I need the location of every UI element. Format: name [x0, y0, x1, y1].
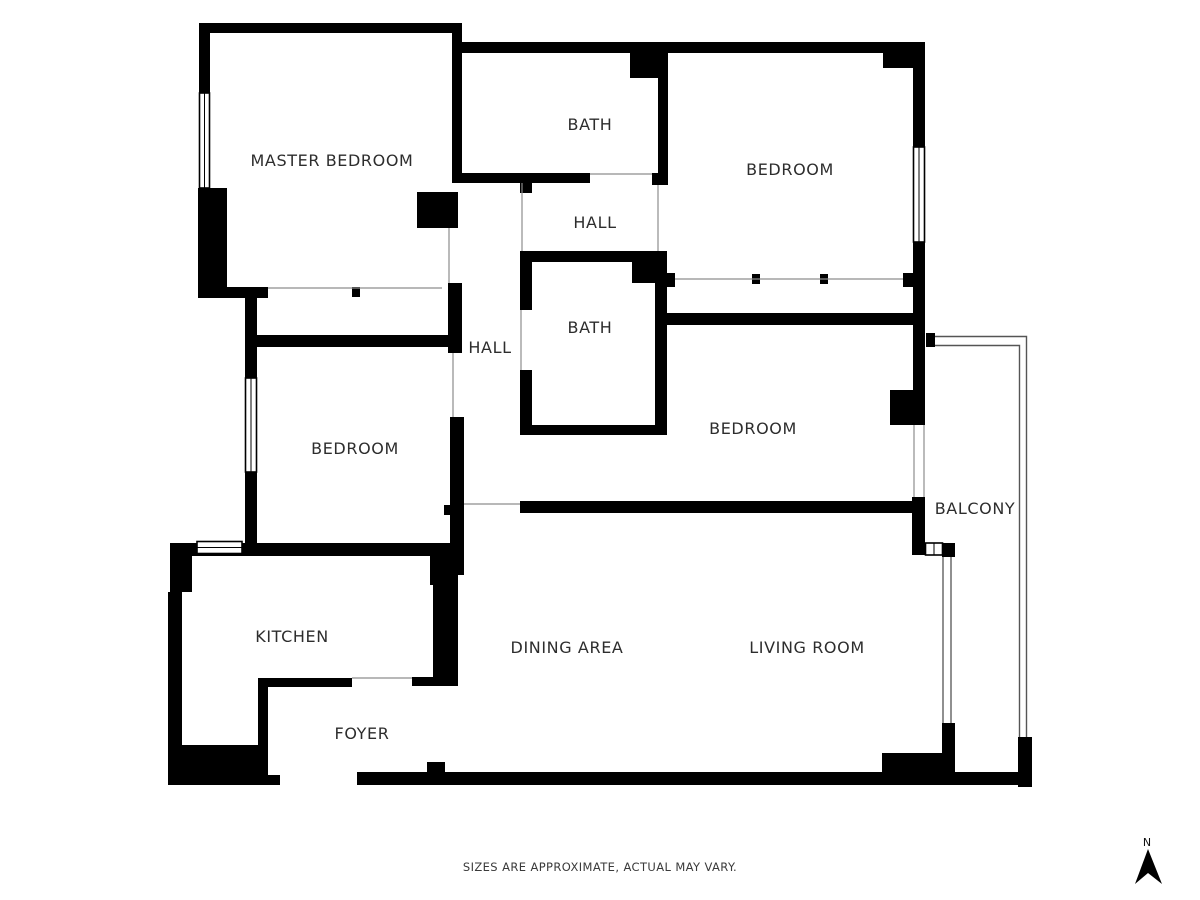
wall: [170, 543, 192, 592]
wall: [652, 173, 658, 185]
wall: [199, 23, 210, 93]
wall: [520, 425, 667, 435]
wall: [412, 677, 458, 686]
room-label-hall-top: HALL: [573, 213, 616, 232]
wall: [655, 283, 667, 435]
wall: [452, 42, 925, 53]
wall-column: [890, 390, 925, 425]
room-label-balcony: BALCONY: [935, 499, 1016, 518]
room-label-bedroom-right: BEDROOM: [709, 419, 797, 438]
room-label-master-bedroom: MASTER BEDROOM: [251, 151, 414, 170]
balcony-rail: [935, 337, 1027, 738]
walls: [168, 23, 1032, 787]
wall: [258, 678, 352, 687]
wall-block: [630, 53, 658, 78]
wall: [245, 298, 257, 378]
wall: [658, 42, 668, 185]
room-label-hall-center: HALL: [468, 338, 511, 357]
wall: [452, 173, 590, 183]
room-label-kitchen: KITCHEN: [255, 627, 329, 646]
wall: [227, 287, 268, 298]
wall: [926, 333, 935, 347]
wall: [667, 313, 913, 325]
room-label-foyer: FOYER: [335, 724, 390, 743]
room-label-living-room: LIVING ROOM: [749, 638, 864, 657]
balcony-rail-outer: [935, 337, 1027, 738]
wall: [427, 762, 445, 772]
room-label-bedroom-left: BEDROOM: [311, 439, 399, 458]
wall: [912, 497, 925, 555]
room-label-bath-center: BATH: [568, 318, 613, 337]
wall: [245, 472, 257, 543]
wall: [258, 678, 268, 778]
wall: [433, 573, 458, 685]
room-label-bedroom-top-right: BEDROOM: [746, 160, 834, 179]
wall-block: [632, 251, 667, 283]
wall: [199, 23, 462, 33]
north-arrow-label: N: [1143, 836, 1151, 849]
wall: [168, 592, 182, 745]
floor-plan-canvas: MASTER BEDROOM BATH HALL BEDROOM HALL BA…: [0, 0, 1200, 900]
glass-wall: [943, 557, 951, 723]
wall: [198, 188, 227, 298]
room-label-bath-top: BATH: [568, 115, 613, 134]
balcony-rail-inner: [935, 346, 1020, 738]
disclaimer-text: SIZES ARE APPROXIMATE, ACTUAL MAY VARY.: [463, 860, 737, 874]
room-label-dining-area: DINING AREA: [511, 638, 624, 657]
closet-end: [903, 273, 913, 287]
wall: [520, 251, 532, 310]
north-arrow-icon: [1135, 849, 1162, 884]
wall: [520, 501, 912, 513]
wall: [667, 273, 675, 284]
wall: [942, 543, 955, 557]
wall: [913, 346, 925, 390]
wall: [257, 335, 453, 347]
wall: [913, 242, 925, 346]
wall: [444, 505, 452, 515]
wall: [913, 53, 925, 147]
wall: [882, 753, 955, 772]
wall: [357, 772, 1028, 785]
floor-plan-page: MASTER BEDROOM BATH HALL BEDROOM HALL BA…: [0, 0, 1200, 900]
wall-closet-block: [417, 192, 458, 228]
wall: [520, 251, 633, 262]
north-arrow: N: [1135, 836, 1162, 884]
wall-block: [168, 745, 258, 785]
